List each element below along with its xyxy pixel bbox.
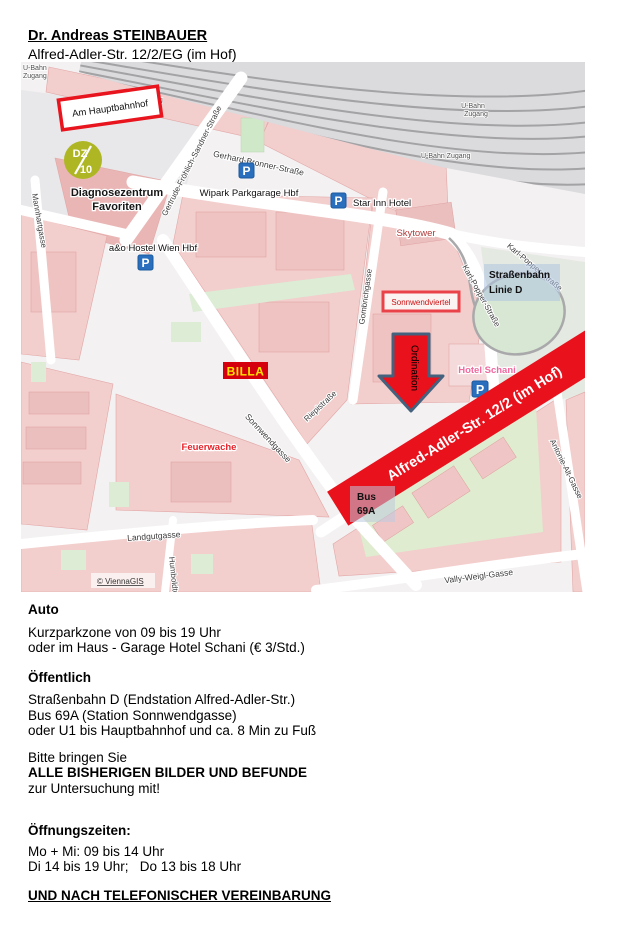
diagnosezentrum-label: Diagnosezentrum [71,187,164,199]
ubahn-label: Zugang [23,73,47,80]
bring-line: zur Untersuchung mit! [28,781,608,797]
bus-label: 69A [357,506,375,517]
auto-line: Kurzparkzone von 09 bis 19 Uhr [28,625,608,641]
ordination-label: Ordination [409,345,420,391]
billa-logo: BILLA [223,362,268,379]
tram-line-label: Straßenbahn [489,270,550,281]
public-line: Bus 69A (Station Sonnwendgasse) [28,708,608,724]
hours-title: Öffnungszeiten: [28,823,608,839]
billa-label: BILLA [227,365,265,379]
document-page: Dr. Andreas STEINBAUER Alfred-Adler-Str.… [0,0,638,928]
sonnwendviertel-label: Sonnwendviertel [391,298,450,307]
logo-dz-text: DZ [73,148,88,160]
parking-icon: P [242,164,250,178]
public-title: Öffentlich [28,670,608,686]
auto-line: oder im Haus - Garage Hotel Schani (€ 3/… [28,640,608,656]
ubahn-label: U-Bahn Zugang [421,153,471,160]
parking-icon: P [141,256,149,270]
bring-line-bold: ALLE BISHERIGEN BILDER UND BEFUNDE [28,765,608,781]
hotel-schani-label: Hotel Schani [458,365,516,376]
bus-callout: Bus 69A [350,486,395,522]
doctor-name: Dr. Andreas STEINBAUER [28,28,207,44]
parking-icon: P [334,194,342,208]
hostel-label: a&o Hostel Wien Hbf [109,243,198,254]
skytower-label: Skytower [396,228,435,239]
public-line: Straßenbahn D (Endstation Alfred-Adler-S… [28,692,608,708]
ubahn-label: U-Bahn [23,65,47,72]
map-canvas: Mannhartgasse Gertrude-Fröhlich-Sandner-… [21,62,585,592]
hours-line: Mo + Mi: 09 bis 14 Uhr [28,844,608,860]
tram-line-callout: Straßenbahn Linie D [484,264,560,301]
ubahn-label: U-Bahn [461,103,485,110]
attribution-label: © ViennaGIS [97,577,144,586]
feuerwache-label: Feuerwache [182,442,237,453]
public-line: oder U1 bis Hauptbahnhof und ca. 8 Min z… [28,723,608,739]
location-map: Mannhartgasse Gertrude-Fröhlich-Sandner-… [21,62,585,592]
tram-line-label: Linie D [489,285,522,296]
hours-line: Di 14 bis 19 Uhr; Do 13 bis 18 Uhr [28,859,608,875]
diagnosezentrum-label: Favoriten [92,201,142,213]
doctor-address: Alfred-Adler-Str. 12/2/EG (im Hof) [28,46,237,62]
map-attribution: © ViennaGIS [91,573,155,588]
logo-10-text: 10 [80,164,92,176]
bus-label: Bus [357,492,376,503]
sonnwendviertel-callout: Sonnwendviertel [383,292,459,311]
ubahn-label: Zugang [464,111,488,118]
wipark-label: Wipark Parkgarage Hbf [200,188,299,199]
auto-title: Auto [28,602,608,618]
bring-line: Bitte bringen Sie [28,750,608,766]
appointment-note: UND NACH TELEFONISCHER VEREINBARUNG [28,888,608,904]
info-text: Auto Kurzparkzone von 09 bis 19 Uhr oder… [28,602,608,903]
dz10-logo: DZ 10 [64,141,102,179]
star-inn-label: Star Inn Hotel [353,198,411,209]
